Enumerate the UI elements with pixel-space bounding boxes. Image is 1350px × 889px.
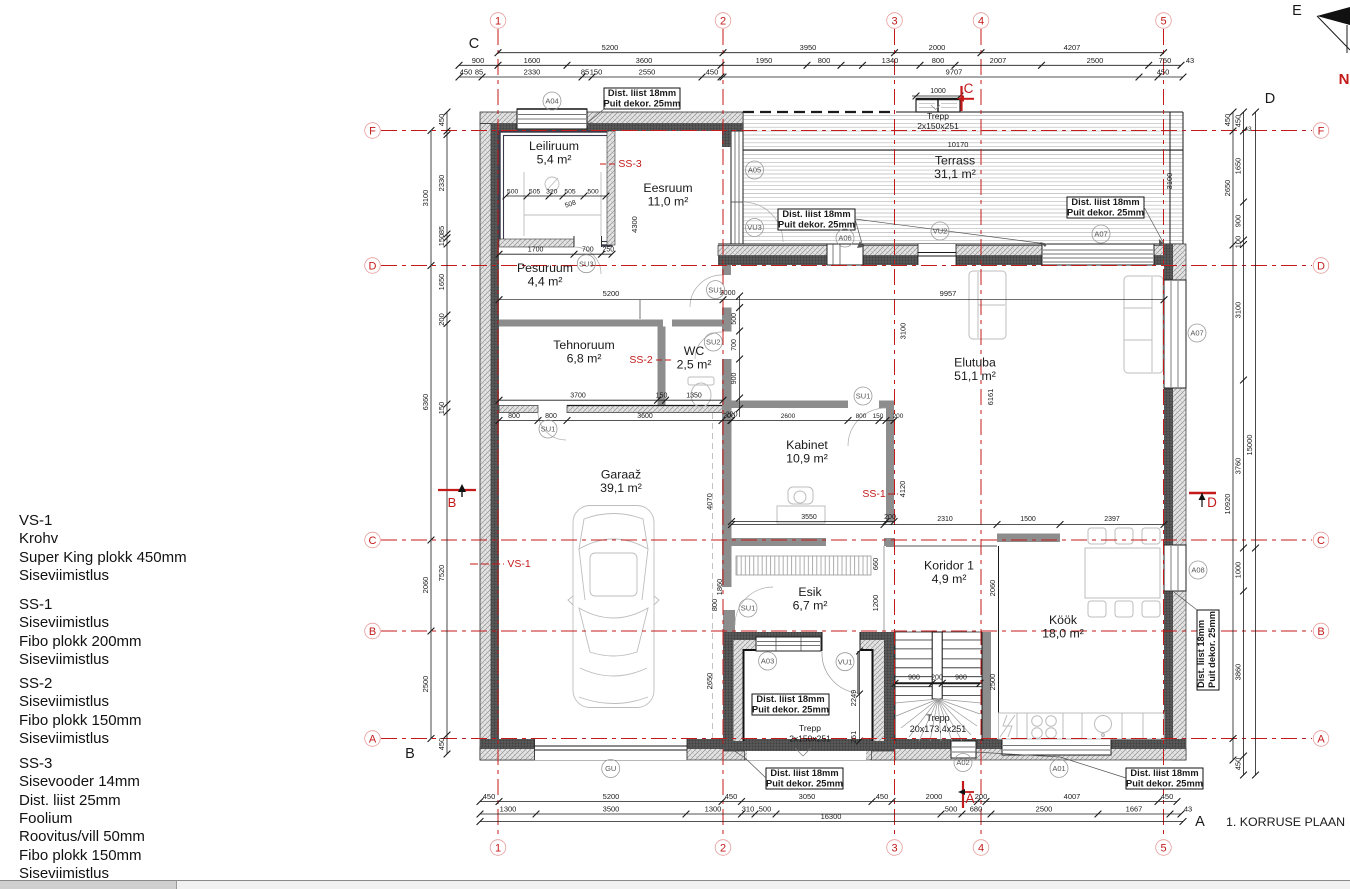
svg-text:B: B [369,626,376,638]
svg-text:3100: 3100 [1234,302,1243,319]
svg-text:505: 505 [564,189,576,196]
svg-text:B: B [448,495,457,510]
svg-text:2007: 2007 [990,56,1007,65]
svg-text:D: D [369,260,377,272]
svg-text:900: 900 [731,372,738,384]
svg-text:Dist. liist 18mm: Dist. liist 18mm [756,694,824,704]
svg-text:10170: 10170 [948,140,969,149]
svg-text:1500: 1500 [1020,516,1036,523]
svg-text:3950: 3950 [800,43,817,52]
svg-text:Koridor 1: Koridor 1 [924,559,974,573]
svg-text:F: F [369,125,376,137]
svg-text:2000: 2000 [929,43,946,52]
svg-text:Puit dekor. 25mm: Puit dekor. 25mm [752,705,829,715]
svg-text:Dist. liist 18mm: Dist. liist 18mm [770,768,838,778]
svg-text:10,9 m²: 10,9 m² [786,452,828,466]
svg-text:500: 500 [759,805,772,814]
svg-text:WC: WC [684,344,705,358]
svg-text:450: 450 [725,792,738,801]
svg-text:5,4 m²: 5,4 m² [537,153,572,167]
svg-text:2310: 2310 [937,516,953,523]
svg-text:1600: 1600 [524,56,541,65]
svg-text:16300: 16300 [821,812,842,821]
svg-text:6161: 6161 [986,389,995,406]
svg-text:Köök: Köök [1049,613,1078,627]
svg-text:6,7 m²: 6,7 m² [793,599,828,613]
svg-text:5: 5 [1160,842,1166,854]
svg-text:800: 800 [856,413,867,420]
svg-text:20x173,4x251: 20x173,4x251 [910,724,967,734]
svg-text:A: A [965,791,974,806]
svg-text:VU2: VU2 [933,227,948,236]
svg-text:51,1 m²: 51,1 m² [954,369,996,383]
svg-text:1667: 1667 [1126,805,1143,814]
svg-text:3550: 3550 [801,514,817,521]
svg-text:E: E [1292,3,1302,19]
svg-text:100: 100 [1234,236,1243,249]
svg-text:Puit dekor. 25mm: Puit dekor. 25mm [1126,779,1203,789]
svg-text:GU: GU [605,764,616,773]
svg-text:500: 500 [945,805,958,814]
svg-text:Dist. liist 18mm: Dist. liist 18mm [1196,620,1206,688]
svg-text:Tehnoruum: Tehnoruum [553,338,615,352]
svg-text:2: 2 [720,15,726,27]
svg-text:C: C [469,36,479,52]
svg-text:Kabinet: Kabinet [786,438,828,452]
svg-text:750: 750 [1159,56,1172,65]
svg-text:2500: 2500 [1036,805,1053,814]
svg-text:450: 450 [1157,68,1170,77]
svg-text:450: 450 [437,738,446,751]
svg-text:9707: 9707 [946,68,963,77]
svg-text:D: D [1265,91,1275,107]
svg-text:3860: 3860 [1234,664,1243,681]
svg-text:4207: 4207 [1064,43,1081,52]
svg-text:1200: 1200 [871,595,880,612]
svg-text:SS-1: SS-1 [862,488,886,500]
svg-text:505: 505 [529,189,541,196]
svg-text:2500: 2500 [421,676,430,693]
svg-text:Leiliruum: Leiliruum [529,139,579,153]
svg-text:900: 900 [1234,215,1243,228]
svg-text:200: 200 [884,514,896,521]
svg-text:450: 450 [1234,115,1243,128]
svg-text:11,0 m²: 11,0 m² [648,195,689,209]
svg-text:31,1 m²: 31,1 m² [934,167,976,181]
svg-text:F: F [1318,125,1325,137]
svg-text:SU2: SU2 [706,338,721,347]
svg-text:450: 450 [1223,114,1232,127]
svg-text:3100: 3100 [421,190,430,207]
svg-text:200: 200 [931,675,943,682]
svg-text:B: B [1317,626,1324,638]
svg-text:2249: 2249 [849,690,858,707]
svg-text:1: 1 [495,15,501,27]
svg-text:800: 800 [818,56,831,65]
svg-text:Trepp: Trepp [926,713,949,723]
svg-text:1350: 1350 [686,393,702,400]
svg-text:2550: 2550 [639,68,656,77]
svg-text:1300: 1300 [705,805,722,814]
svg-text:450: 450 [1234,758,1243,771]
svg-text:500: 500 [507,189,519,196]
svg-text:4: 4 [978,15,984,27]
svg-text:3: 3 [891,15,897,27]
svg-text:2x150x251: 2x150x251 [917,121,959,131]
svg-text:SS-2: SS-2 [629,354,653,366]
svg-text:1340: 1340 [882,56,899,65]
svg-text:85: 85 [437,226,446,234]
svg-text:C: C [1317,535,1325,547]
svg-text:Esik: Esik [798,585,822,599]
svg-text:1700: 1700 [528,247,544,254]
svg-text:150: 150 [437,402,446,415]
svg-text:3500: 3500 [603,805,620,814]
svg-text:4300: 4300 [630,216,639,233]
svg-text:1000: 1000 [930,88,946,95]
svg-text:Terrass: Terrass [935,154,975,168]
svg-text:A: A [1317,733,1325,745]
svg-text:1: 1 [495,842,501,854]
svg-text:2500: 2500 [988,674,997,691]
svg-text:A01: A01 [1052,764,1065,773]
svg-text:85: 85 [581,68,589,77]
svg-text:3100: 3100 [1165,173,1174,190]
svg-text:3600: 3600 [637,413,653,420]
svg-text:2x150x251: 2x150x251 [789,734,831,744]
svg-text:43: 43 [1186,56,1194,65]
svg-text:200: 200 [893,413,904,420]
svg-text:Puit dekor. 25mm: Puit dekor. 25mm [1067,208,1144,218]
svg-text:2600: 2600 [781,413,796,420]
svg-text:39,1 m²: 39,1 m² [600,481,642,495]
svg-text:800: 800 [932,56,945,65]
svg-text:A03: A03 [761,657,774,666]
svg-text:4070: 4070 [705,493,714,510]
svg-text:A: A [369,733,377,745]
svg-text:A04: A04 [545,97,558,106]
svg-text:500: 500 [587,189,599,196]
svg-text:A07: A07 [1094,230,1107,239]
svg-text:Pesuruum: Pesuruum [517,261,573,275]
svg-text:1. KORRUSE PLAAN: 1. KORRUSE PLAAN [1226,815,1345,829]
svg-text:660: 660 [871,558,880,571]
svg-text:43: 43 [1244,126,1252,133]
svg-text:SS-3: SS-3 [618,158,642,170]
svg-text:5200: 5200 [602,43,619,52]
svg-text:Elutuba: Elutuba [954,356,996,370]
svg-text:SU1: SU1 [856,392,871,401]
svg-text:900: 900 [908,675,920,682]
svg-text:2397: 2397 [1104,516,1120,523]
svg-text:Eesruum: Eesruum [643,181,692,195]
svg-text:250: 250 [602,247,614,254]
svg-text:85: 85 [475,68,483,77]
svg-text:1650: 1650 [437,274,446,291]
svg-text:B: B [405,746,415,762]
svg-text:900: 900 [472,56,485,65]
svg-text:Trepp: Trepp [799,723,821,733]
svg-text:N: N [1339,71,1350,88]
svg-text:4,9 m²: 4,9 m² [932,572,967,586]
svg-text:4007: 4007 [1064,792,1081,801]
svg-text:Garaaž: Garaaž [601,468,641,482]
svg-text:800: 800 [710,599,719,612]
svg-text:Dist. liist 18mm: Dist. liist 18mm [1071,197,1139,207]
svg-text:450: 450 [1161,792,1174,801]
svg-text:150: 150 [590,68,603,77]
svg-text:3760: 3760 [1234,458,1243,475]
svg-text:2: 2 [720,842,726,854]
svg-text:5200: 5200 [603,289,620,298]
svg-text:700: 700 [731,339,738,351]
svg-text:VU1: VU1 [838,657,853,666]
svg-text:3100: 3100 [899,323,908,340]
svg-text:Dist. liist 18mm: Dist. liist 18mm [608,88,676,98]
svg-text:5: 5 [1160,15,1166,27]
svg-text:A: A [1195,814,1205,830]
svg-text:15000: 15000 [1245,435,1254,456]
svg-text:700: 700 [582,247,594,254]
svg-text:450: 450 [437,114,446,127]
svg-text:7520: 7520 [437,565,446,582]
svg-text:500: 500 [731,313,738,325]
svg-text:800: 800 [508,413,520,420]
svg-text:2060: 2060 [421,577,430,594]
svg-text:A05: A05 [748,166,761,175]
svg-text:SU1: SU1 [708,285,723,294]
svg-text:320: 320 [546,189,558,196]
svg-text:18,0 m²: 18,0 m² [1042,627,1084,641]
svg-text:2500: 2500 [1087,56,1104,65]
svg-text:Puit dekor. 25mm: Puit dekor. 25mm [778,220,855,230]
svg-text:VU3: VU3 [747,223,762,232]
svg-text:150: 150 [873,413,884,420]
svg-text:2650: 2650 [705,673,714,690]
svg-text:SU1: SU1 [741,604,756,613]
svg-text:43: 43 [1184,805,1192,814]
svg-text:A06: A06 [838,234,851,243]
svg-text:3: 3 [891,842,897,854]
svg-text:A07: A07 [1190,329,1203,338]
svg-text:1000: 1000 [1234,562,1243,579]
svg-text:450: 450 [706,68,719,77]
svg-text:4,4 m²: 4,4 m² [528,275,563,289]
svg-text:2000: 2000 [926,792,943,801]
svg-text:Puit dekor. 25mm: Puit dekor. 25mm [1207,611,1217,688]
svg-text:SU1: SU1 [541,425,556,434]
svg-text:Dist. liist 18mm: Dist. liist 18mm [782,209,850,219]
svg-text:2650: 2650 [1223,180,1232,197]
svg-text:251: 251 [849,731,858,744]
svg-text:200: 200 [975,792,988,801]
svg-text:3600: 3600 [636,56,653,65]
svg-text:10920: 10920 [1223,494,1232,515]
svg-text:VS-1: VS-1 [507,558,531,570]
svg-text:1300: 1300 [500,805,517,814]
svg-text:3050: 3050 [799,792,816,801]
svg-text:5200: 5200 [603,792,620,801]
svg-text:SU3: SU3 [579,259,594,268]
svg-text:D: D [1207,495,1217,510]
svg-text:4: 4 [978,842,984,854]
svg-text:A08: A08 [1191,566,1204,575]
svg-text:4120: 4120 [898,481,907,498]
svg-text:1950: 1950 [756,56,773,65]
svg-text:150: 150 [656,393,668,400]
svg-text:6,8 m²: 6,8 m² [567,352,602,366]
svg-text:450: 450 [876,792,889,801]
svg-text:D: D [1317,260,1325,272]
svg-text:450: 450 [483,792,496,801]
svg-text:Puit dekor. 25mm: Puit dekor. 25mm [604,99,681,109]
svg-text:800: 800 [545,413,557,420]
svg-text:2,5 m²: 2,5 m² [677,358,712,372]
svg-text:Trepp: Trepp [927,111,949,121]
svg-text:200: 200 [437,313,446,326]
svg-text:A02: A02 [956,758,969,767]
svg-text:Puit dekor. 25mm: Puit dekor. 25mm [766,779,843,789]
svg-text:1860: 1860 [715,579,724,596]
svg-text:310: 310 [742,805,755,814]
svg-text:9957: 9957 [940,289,957,298]
svg-text:900: 900 [955,675,967,682]
svg-text:Dist. liist 18mm: Dist. liist 18mm [1130,768,1198,778]
svg-text:150: 150 [437,234,446,247]
svg-text:2330: 2330 [524,68,541,77]
svg-text:450: 450 [460,68,473,77]
svg-text:1650: 1650 [1234,158,1243,175]
svg-text:C: C [369,535,377,547]
svg-text:2330: 2330 [437,175,446,192]
svg-text:6360: 6360 [421,394,430,411]
svg-text:2060: 2060 [988,580,997,597]
svg-text:3700: 3700 [570,393,586,400]
svg-text:C: C [964,81,974,96]
